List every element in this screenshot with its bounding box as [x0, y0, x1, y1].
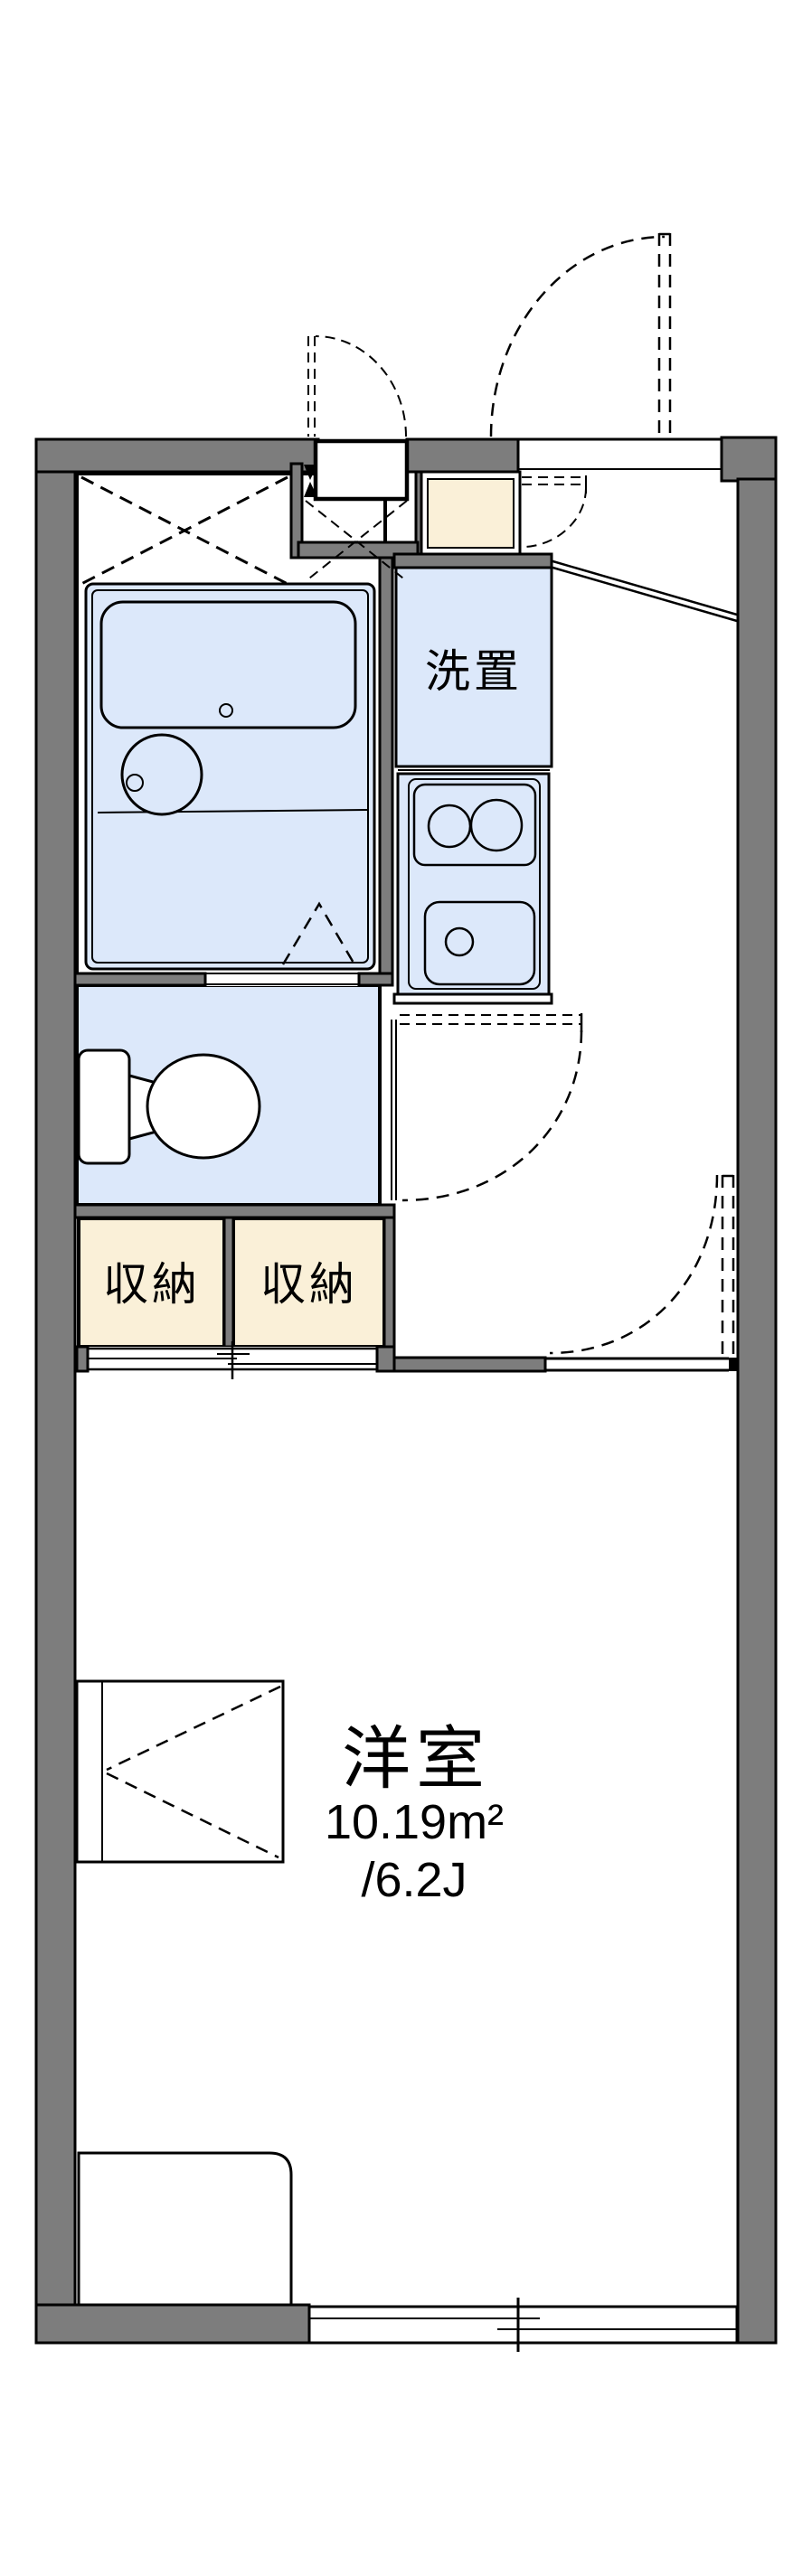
window-band [309, 2307, 737, 2343]
service-door-swing-arc [316, 336, 406, 437]
hallway-door-swing-arc [402, 1030, 581, 1200]
wall-bathroom-right [380, 558, 392, 985]
kitchen-unit [394, 568, 552, 1003]
western-room-area-tatami: /6.2J [361, 1853, 467, 1907]
toilet-room [77, 985, 380, 1205]
entrance-door-swing-arc [491, 237, 665, 437]
storage-right-label: 収納 [260, 1259, 358, 1310]
wall-left [36, 439, 75, 2343]
western-room-area-sqm: 10.19m² [325, 1795, 504, 1849]
wall-storage-right [384, 1217, 394, 1347]
entrance-threshold [518, 437, 722, 470]
entrance-step-line [550, 567, 737, 621]
wall-top-right-corner [722, 437, 776, 481]
counter-ledge [394, 994, 552, 1003]
wall-storage-right-foot [377, 1347, 394, 1371]
floor-plan-canvas: 洗置 収納 収納 洋室 10.19m² /6.2J [0, 0, 812, 2576]
bathtub [101, 602, 355, 728]
wall-band-western-top [394, 1358, 545, 1371]
wall-stub-storage-left [77, 1347, 88, 1371]
shoe-cabinet-door-arc [523, 488, 586, 547]
kitchen-counter [398, 774, 549, 994]
laundry-label: 洗置 [425, 646, 523, 697]
wall-right [738, 479, 776, 2343]
built-in-counter [77, 1681, 283, 1862]
western-door-swing-arc [550, 1175, 717, 1353]
floor-plan-page: 洗置 収納 収納 洋室 10.19m² /6.2J [0, 0, 812, 2576]
storage-left-label: 収納 [103, 1259, 201, 1310]
wall-top-mid [407, 439, 518, 472]
toilet-bowl-icon [147, 1055, 260, 1158]
wall-below-toilet [75, 1205, 394, 1217]
wall-below-bathroom-right [359, 973, 392, 985]
entrance-step-line [550, 560, 737, 615]
shoe-cabinet [428, 479, 514, 548]
service-door-frame [316, 441, 407, 499]
wall-top-left [36, 439, 318, 472]
toilet-tank-icon [79, 1050, 129, 1163]
western-room-label: 洋室 [342, 1721, 490, 1798]
low-cabinet [79, 2153, 291, 2307]
wall-below-bathroom-left [75, 973, 205, 985]
wall-band-laundry-top [394, 554, 552, 568]
wall-bottom-left [36, 2305, 309, 2343]
storage-divider-wall [224, 1217, 233, 1347]
